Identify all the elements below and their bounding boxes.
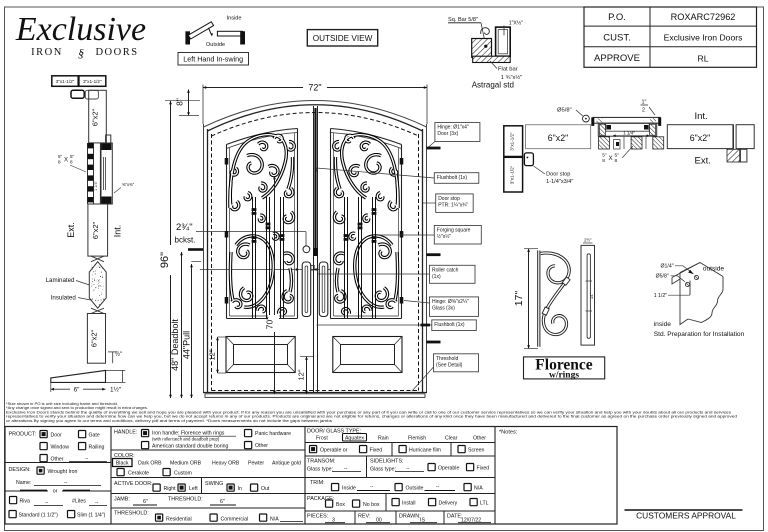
svg-text:Sq. Bar 5/8": Sq. Bar 5/8": [448, 17, 478, 23]
svg-text:THRESHOLD:: THRESHOLD:: [168, 497, 203, 503]
svg-text:X: X: [609, 155, 613, 162]
svg-text:Screen: Screen: [468, 448, 485, 454]
svg-text:Inside: Inside: [342, 486, 356, 492]
svg-text:Antique gold: Antique gold: [272, 461, 301, 467]
svg-text:1": 1": [642, 100, 647, 106]
svg-text:6"x2": 6"x2": [91, 108, 100, 126]
svg-text:Frost: Frost: [316, 436, 328, 442]
svg-text:8: 8: [615, 158, 618, 164]
svg-text:Int.: Int.: [113, 225, 123, 238]
svg-text:Heavy ORB: Heavy ORB: [212, 461, 240, 467]
svg-text:Dark ORB: Dark ORB: [138, 461, 162, 467]
svg-text:12": 12": [297, 369, 306, 380]
svg-text:1 1/4": 1 1/4": [94, 180, 98, 190]
svg-text:12": 12": [208, 349, 217, 360]
svg-text:8": 8": [175, 98, 185, 106]
svg-text:3"x1-1/2": 3"x1-1/2": [510, 165, 515, 184]
svg-text:2: 2: [642, 108, 645, 114]
svg-text:Laminated: Laminated: [46, 277, 75, 284]
svg-text:Flushbolt (1x): Flushbolt (1x): [437, 175, 468, 181]
svg-text:Wrought Iron: Wrought Iron: [48, 469, 78, 475]
svg-text:CUSTOMERS APPROVAL: CUSTOMERS APPROVAL: [636, 511, 736, 521]
svg-text:Name:: Name:: [16, 480, 31, 486]
svg-text:(with rollercatch and deadbolt: (with rollercatch and deadbolt prep): [152, 436, 220, 441]
svg-text:Door (3x): Door (3x): [437, 131, 458, 137]
svg-text:Flushbolt (1x): Flushbolt (1x): [434, 322, 465, 328]
svg-text:72": 72": [308, 83, 321, 93]
svg-text:SWING: SWING: [205, 481, 223, 487]
svg-text:In: In: [238, 486, 242, 492]
svg-text:--: --: [45, 500, 49, 506]
svg-text:Glass type:: Glass type:: [370, 467, 396, 473]
svg-text:Black: Black: [116, 461, 129, 467]
svg-text:Exclusive Iron Doors: Exclusive Iron Doors: [664, 33, 743, 43]
svg-text:3"x1-1/2": 3"x1-1/2": [56, 79, 75, 84]
svg-text:Commercial: Commercial: [221, 517, 249, 523]
svg-text:Hurricane film: Hurricane film: [409, 448, 441, 454]
svg-text:Ø5/8": Ø5/8": [656, 274, 669, 280]
svg-text:§: §: [78, 46, 84, 60]
svg-text:Panic hardware: Panic hardware: [255, 431, 291, 437]
svg-text:PRODUCT:: PRODUCT:: [9, 432, 37, 438]
svg-text:3"x1-1/2": 3"x1-1/2": [83, 79, 102, 84]
svg-text:Operable or: Operable or: [320, 448, 348, 454]
svg-text:Rain: Rain: [378, 436, 389, 442]
svg-text:Ø5/8": Ø5/8": [557, 108, 572, 114]
svg-text:3"x1-1/2": 3"x1-1/2": [510, 132, 515, 151]
svg-text:N/A: N/A: [474, 486, 483, 492]
svg-text:8: 8: [70, 160, 73, 165]
svg-text:1 1/2": 1 1/2": [654, 293, 668, 299]
svg-text:PIECES:: PIECES:: [307, 514, 328, 520]
svg-text:Other: Other: [473, 436, 486, 442]
svg-text:Roller catch: Roller catch: [432, 268, 459, 274]
svg-text:Forging square: Forging square: [437, 228, 471, 234]
svg-text:Left: Left: [189, 486, 198, 492]
svg-text:5": 5": [70, 154, 75, 159]
svg-text:Pewter: Pewter: [248, 461, 264, 467]
svg-text:Medium ORB: Medium ORB: [170, 461, 202, 467]
svg-text:Outside: Outside: [206, 42, 225, 48]
svg-text:DOORS: DOORS: [95, 47, 138, 58]
svg-text:(See Detail): (See Detail): [436, 362, 463, 368]
svg-text:48" Deadbolt: 48" Deadbolt: [170, 319, 180, 371]
svg-text:CUST.: CUST.: [603, 33, 630, 44]
svg-text:Left Hand In-swing: Left Hand In-swing: [183, 55, 243, 64]
svg-text:Insulated: Insulated: [51, 295, 77, 302]
svg-text:Gate: Gate: [89, 433, 100, 439]
svg-text:APPROVE: APPROVE: [594, 53, 640, 64]
svg-text:outside: outside: [703, 266, 725, 273]
svg-text:Residential: Residential: [166, 517, 192, 523]
svg-text:6"x2": 6"x2": [548, 133, 568, 143]
svg-text:Box: Box: [336, 502, 345, 508]
svg-text:OUTSIDE VIEW: OUTSIDE VIEW: [313, 34, 373, 43]
svg-text:1 1/4": 1 1/4": [623, 130, 635, 135]
svg-text:Std. Preparation for Installat: Std. Preparation for Installation: [654, 331, 745, 338]
svg-text:PTR: 1¼"x¾": PTR: 1¼"x¾": [438, 203, 468, 209]
svg-text:Astragal std: Astragal std: [472, 81, 514, 90]
svg-text:Glass type:: Glass type:: [307, 467, 333, 473]
svg-text:ROXARC72962: ROXARC72962: [671, 12, 736, 22]
svg-text:14": 14": [589, 292, 594, 299]
svg-text:Exclusive: Exclusive: [15, 11, 146, 48]
svg-text:Flat bar: Flat bar: [498, 66, 518, 72]
svg-text:bckst.: bckst.: [175, 236, 196, 245]
svg-text:Railing: Railing: [89, 445, 105, 451]
svg-text:6": 6": [143, 499, 148, 505]
svg-text:P.O.: P.O.: [608, 12, 626, 23]
svg-text:Window: Window: [51, 445, 70, 451]
svg-text:Clear: Clear: [445, 436, 458, 442]
svg-text:Door stop: Door stop: [438, 196, 460, 202]
svg-text:½": ½": [115, 351, 122, 358]
svg-text:--: --: [95, 500, 99, 506]
svg-text:N/A: N/A: [270, 517, 279, 523]
svg-text:Delivery: Delivery: [439, 501, 458, 507]
svg-text:2¾": 2¾": [176, 222, 193, 233]
svg-text:HANDLE:: HANDLE:: [114, 430, 137, 436]
svg-text:Threshold: Threshold: [436, 356, 458, 362]
svg-text:X: X: [64, 158, 68, 164]
svg-text:No box: No box: [363, 502, 380, 508]
svg-text:Riva: Riva: [20, 499, 30, 505]
svg-text:5": 5": [615, 153, 620, 159]
svg-text:5": 5": [58, 154, 63, 159]
svg-text:ACTIVE DOOR:: ACTIVE DOOR:: [114, 481, 153, 487]
svg-text:6": 6": [74, 387, 80, 394]
svg-text:Door stop: Door stop: [546, 172, 570, 178]
svg-text:1"X½": 1"X½": [509, 20, 524, 27]
svg-text:Fixed: Fixed: [477, 466, 490, 472]
svg-text:DRAWN:: DRAWN:: [399, 514, 421, 520]
svg-text:Standard (1 1/2"): Standard (1 1/2"): [19, 513, 59, 519]
svg-text:inside: inside: [654, 321, 672, 328]
svg-text:JAMB:: JAMB:: [114, 497, 130, 503]
svg-text:--: --: [85, 456, 89, 462]
svg-text:Other: Other: [51, 457, 64, 463]
svg-text:Right: Right: [164, 486, 177, 492]
svg-text:6": 6": [220, 499, 225, 505]
svg-text:⅜"x⅜": ⅜"x⅜": [122, 182, 135, 187]
svg-text:6"x2": 6"x2": [91, 221, 100, 239]
svg-text:6"x2": 6"x2": [690, 133, 710, 143]
svg-text:Hinge: Ø1"x4": Hinge: Ø1"x4": [437, 125, 469, 131]
svg-text:1½": 1½": [110, 386, 121, 394]
svg-text:w/rings: w/rings: [549, 371, 579, 381]
svg-text:REV:: REV:: [358, 514, 370, 520]
svg-text:Operable: Operable: [438, 466, 459, 472]
svg-text:Hinge: Ø⅝"x2¼": Hinge: Ø⅝"x2¼": [432, 299, 469, 305]
svg-text:Outside: Outside: [406, 486, 424, 492]
svg-text:IRON: IRON: [31, 47, 63, 58]
svg-text:Cerakote: Cerakote: [128, 471, 149, 477]
svg-text:Flemish: Flemish: [408, 436, 426, 442]
svg-text:6"x2": 6"x2": [90, 329, 99, 347]
svg-text:LTL: LTL: [480, 501, 489, 507]
svg-text:½"x½": ½"x½": [437, 233, 452, 240]
svg-text:--: --: [406, 466, 410, 472]
svg-text:Ø1/4": Ø1/4": [661, 264, 674, 270]
svg-text:8: 8: [602, 158, 605, 164]
svg-text:Custom: Custom: [174, 471, 192, 477]
svg-text:96": 96": [159, 252, 171, 268]
svg-text:(1x): (1x): [432, 274, 441, 280]
svg-text:#Lites: #Lites: [72, 499, 86, 505]
svg-text:5": 5": [602, 153, 607, 159]
svg-text:Ext.: Ext.: [66, 222, 76, 238]
svg-text:--: --: [64, 480, 68, 486]
svg-text:Int.: Int.: [695, 111, 708, 122]
svg-text:or: or: [53, 489, 58, 495]
svg-text:Inside: Inside: [227, 16, 242, 22]
svg-text:Install: Install: [402, 501, 416, 507]
svg-text:Other: Other: [255, 443, 268, 449]
svg-text:TRANSOM:: TRANSOM:: [307, 459, 335, 465]
svg-text:44"Pull: 44"Pull: [182, 331, 192, 359]
svg-text:2½": 2½": [584, 238, 592, 243]
svg-text:--: --: [370, 484, 374, 490]
svg-text:Slim (1 1/4"): Slim (1 1/4"): [77, 513, 106, 519]
svg-text:*Notes:: *Notes:: [499, 430, 518, 436]
svg-text:Fixed: Fixed: [370, 448, 383, 454]
svg-text:American standard double borin: American standard double boring: [152, 444, 229, 450]
svg-text:--: --: [344, 466, 348, 472]
svg-text:RL: RL: [698, 54, 709, 64]
svg-text:70": 70": [265, 317, 275, 329]
svg-text:Out: Out: [261, 486, 270, 492]
svg-text:SIDELIGHTS:: SIDELIGHTS:: [370, 459, 404, 465]
svg-text:THRESHOLD:: THRESHOLD:: [114, 511, 149, 517]
svg-text:Glass (3x): Glass (3x): [432, 306, 455, 312]
svg-text:or alterations.By signing you: or alterations.By signing you agree to o…: [6, 418, 332, 423]
svg-text:8: 8: [58, 160, 61, 165]
svg-text:Door: Door: [51, 433, 63, 439]
svg-text:--: --: [436, 484, 440, 490]
svg-text:1-1/4"x3/4": 1-1/4"x3/4": [546, 179, 573, 185]
svg-text:Ext.: Ext.: [695, 156, 711, 167]
svg-text:DESIGN:: DESIGN:: [9, 467, 31, 473]
svg-text:17": 17": [513, 291, 525, 307]
svg-text:Aquatex: Aquatex: [345, 436, 364, 442]
svg-text:TRIM:: TRIM:: [310, 480, 325, 486]
